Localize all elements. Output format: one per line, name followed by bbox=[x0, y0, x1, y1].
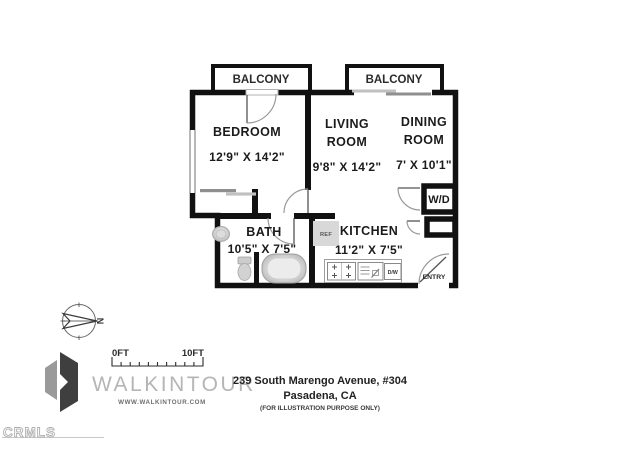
branding: WALKINTOUR WWW.WALKINTOUR.COM bbox=[45, 352, 256, 412]
wall-bedroom-living bbox=[305, 90, 311, 190]
entry-label: ENTRY bbox=[423, 274, 446, 281]
balcony-right-label: BALCONY bbox=[366, 74, 423, 86]
wd-label: W/D bbox=[428, 194, 449, 206]
dining-room-label-1: DINING bbox=[401, 115, 447, 129]
balcony-slider-panel-1 bbox=[352, 90, 396, 93]
balcony-left-label: BALCONY bbox=[233, 74, 290, 86]
address-line-2: Pasadena, CA bbox=[283, 390, 356, 402]
refrigerator-label: REF bbox=[320, 232, 332, 238]
entry-opening bbox=[418, 283, 449, 290]
scale-end-label: 10FT bbox=[182, 348, 204, 359]
living-room-label-2: ROOM bbox=[327, 135, 368, 149]
address-disclaimer: (FOR ILLUSTRATION PURPOSE ONLY) bbox=[260, 405, 380, 412]
closet-slider-panel-2 bbox=[226, 192, 256, 195]
dishwasher-label: D/W bbox=[388, 270, 398, 276]
bath-dims: 10'5" X 7'5" bbox=[228, 242, 297, 256]
wall-bath-top-left bbox=[215, 213, 271, 219]
kitchen-dims: 11'2" X 7'5" bbox=[335, 243, 403, 257]
address-block: 239 South Marengo Avenue, #304 Pasadena,… bbox=[233, 375, 408, 412]
kitchen-label: KITCHEN bbox=[340, 224, 398, 238]
floor-plan-canvas: BALCONY BALCONY W/D bbox=[0, 0, 640, 453]
bathtub-inner bbox=[267, 258, 301, 279]
bedroom-window-inner bbox=[194, 130, 195, 193]
compass-icon: N bbox=[61, 303, 106, 341]
scale-start-label: 0FT bbox=[112, 348, 129, 359]
bedroom-dims: 12'9" X 14'2" bbox=[209, 150, 285, 164]
compass-north-letter: N bbox=[95, 318, 105, 325]
toilet-bowl bbox=[238, 264, 251, 281]
scale-bar: 0FT 10FT bbox=[112, 348, 204, 366]
logo-mark-gray bbox=[45, 360, 57, 400]
bedroom-window-outer bbox=[189, 130, 190, 193]
bedroom-label: BEDROOM bbox=[213, 125, 281, 139]
bath-label: BATH bbox=[246, 225, 281, 239]
wall-tub-divider bbox=[254, 252, 259, 283]
kitchen-sink-icon bbox=[358, 263, 383, 281]
watermark: CRMLS bbox=[2, 425, 104, 440]
dining-room-dims: 7' X 10'1" bbox=[396, 158, 452, 172]
balcony-door-threshold bbox=[246, 90, 278, 96]
floor-plan-page: BALCONY BALCONY W/D bbox=[0, 0, 640, 453]
balcony-left: BALCONY bbox=[213, 66, 310, 92]
logo-website: WWW.WALKINTOUR.COM bbox=[118, 399, 206, 406]
living-room-dims: 9'8" X 14'2" bbox=[313, 160, 382, 174]
dining-room-label-2: ROOM bbox=[404, 133, 445, 147]
wall-kitchen-top bbox=[309, 213, 335, 219]
watermark-text: CRMLS bbox=[3, 425, 56, 440]
closet-slider-panel-1 bbox=[200, 189, 236, 192]
small-closet bbox=[427, 219, 455, 235]
living-room-label-1: LIVING bbox=[325, 117, 369, 131]
toilet-tank bbox=[238, 257, 251, 264]
balcony-right: BALCONY bbox=[347, 66, 442, 92]
balcony-slider-panel-2 bbox=[386, 93, 431, 96]
bath-sink-bowl bbox=[216, 230, 226, 239]
address-line-1: 239 South Marengo Avenue, #304 bbox=[233, 375, 408, 387]
logo-text: WALKINTOUR bbox=[92, 373, 256, 396]
